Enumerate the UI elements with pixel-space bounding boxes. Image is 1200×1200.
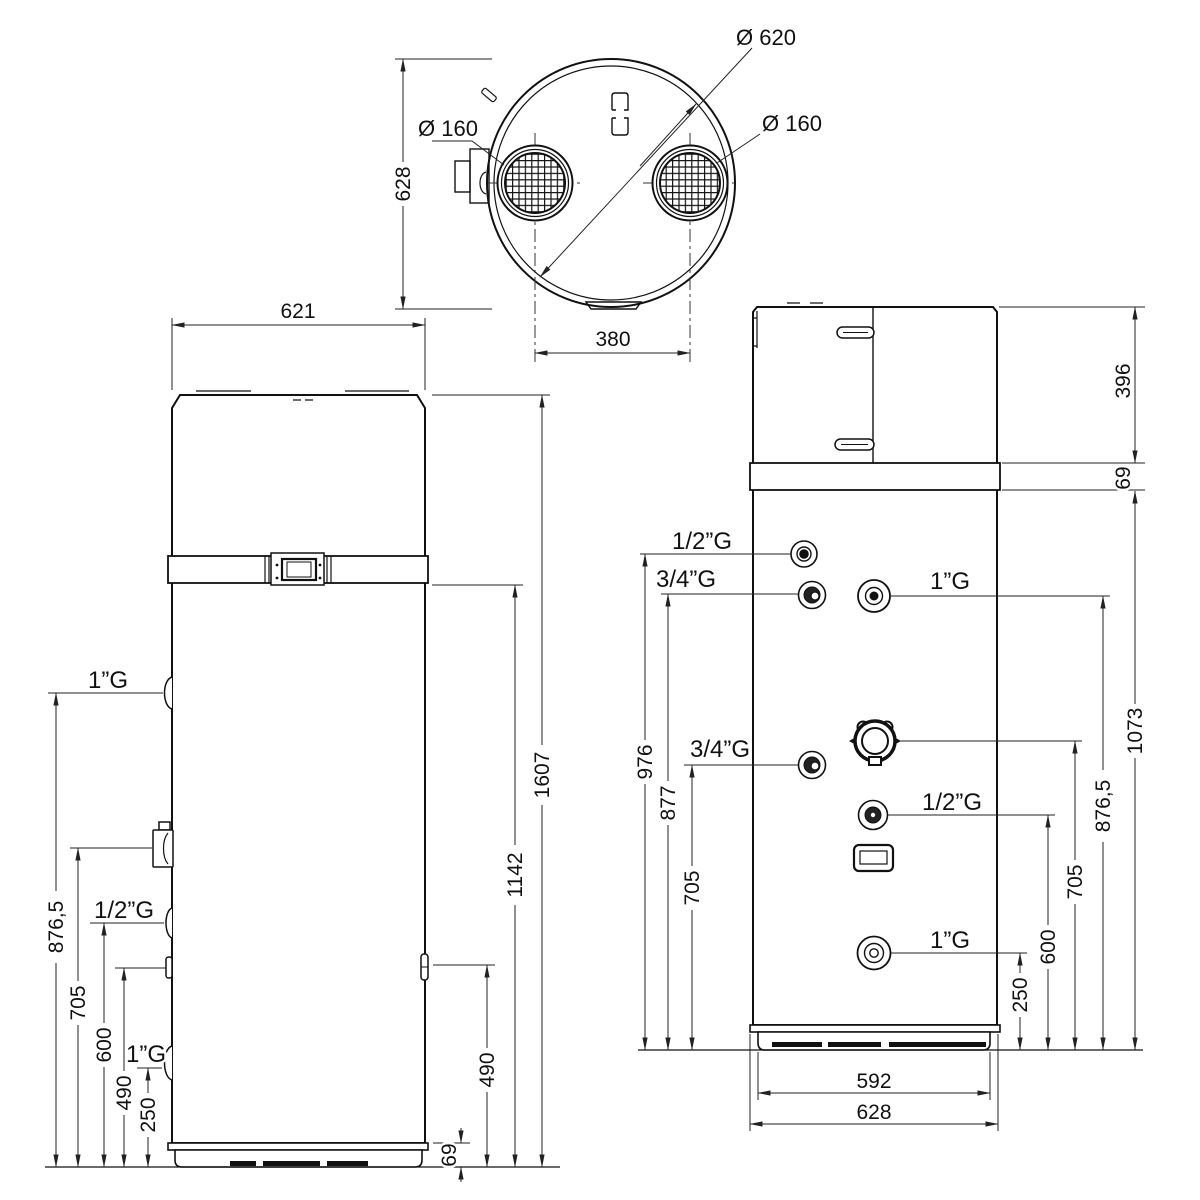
- back-label-half-mid: 1/2”G: [922, 789, 982, 816]
- front-port-half-label: 1/2”G: [94, 897, 154, 924]
- dim-1073-label: 1073: [1124, 708, 1147, 755]
- cap-hinge-top: [837, 327, 874, 338]
- dim-1142-label: 1142: [504, 852, 527, 897]
- side-bracket: [455, 149, 489, 203]
- dim-976-label: 976: [634, 744, 657, 779]
- dim-490-right-label: 490: [476, 1052, 499, 1087]
- dim-705-back-left-label: 705: [681, 870, 704, 905]
- dim-69-front-label: 69: [438, 1143, 461, 1166]
- small-tab-fitting: [166, 957, 172, 978]
- back-label-1g-lower: 1”G: [930, 927, 970, 954]
- fan-grille-left: [498, 146, 573, 221]
- dim-877-label: 877: [657, 785, 680, 820]
- dia-620-label: Ø 620: [736, 25, 796, 50]
- dim-250-front: 250: [137, 1068, 162, 1167]
- back-band: [750, 463, 1000, 490]
- dim-705-front-label: 705: [67, 985, 90, 1020]
- back-label-half-top: 1/2”G: [672, 528, 732, 555]
- dim-1607-label: 1607: [531, 752, 554, 799]
- dim-69-band: 69: [1112, 466, 1135, 489]
- dia-160-left-label: Ø 160: [418, 116, 478, 141]
- dim-490-right: 490: [433, 965, 499, 1167]
- port-1g-upper: [858, 580, 890, 612]
- front-port-1g-low-label: 1”G: [126, 1041, 166, 1068]
- heat-pump-dimension-drawing: Ø 620 Ø 160 Ø 160 628 380: [0, 0, 1200, 1200]
- dim-976-back: 976: [634, 554, 657, 1050]
- dim-592-label: 592: [856, 1070, 891, 1093]
- dim-621-width: 621: [172, 300, 425, 390]
- dim-600-back-label: 600: [1037, 929, 1060, 964]
- dim-250-back-label: 250: [1009, 977, 1032, 1012]
- dim-705-back-left: 705: [681, 765, 704, 1050]
- dim-705-back-right-label: 705: [1064, 864, 1087, 899]
- back-body-outline: [753, 307, 997, 1025]
- dim-876-5-back-label: 876,5: [1092, 780, 1115, 833]
- front-view: 621 1607 1142 490 69: [45, 300, 560, 1182]
- side-box-fitting: [153, 822, 173, 867]
- port-half-g-front: [166, 908, 172, 938]
- right-latch-fitting: [421, 954, 428, 980]
- dim-380-duct-spacing: 380: [535, 328, 690, 353]
- dim-250-back: 250: [1009, 953, 1032, 1050]
- dim-396-label: 396: [1112, 363, 1135, 398]
- dim-628-label: 628: [392, 166, 415, 201]
- port-half-g-mid: [859, 801, 888, 830]
- dim-69-band-label: 69: [1112, 466, 1135, 489]
- technical-drawing-page: Ø 620 Ø 160 Ø 160 628 380: [0, 0, 1200, 1200]
- dim-380-label: 380: [595, 328, 630, 351]
- port-1g-top-front: [165, 677, 173, 709]
- dim-592-skirt: 592: [758, 1052, 990, 1100]
- port-half-g-top: [791, 541, 817, 567]
- dim-396-cap: 396: [999, 307, 1145, 490]
- front-base-vents: [230, 1161, 368, 1166]
- port-1g-lower: [858, 937, 891, 970]
- dia-160-right-label: Ø 160: [762, 111, 822, 136]
- front-body-outline: [172, 395, 425, 1143]
- back-base-lip: [750, 1025, 1000, 1032]
- dim-69-base-front: 69: [433, 1128, 470, 1182]
- back-label-threeq-mid: 3/4”G: [690, 736, 750, 763]
- dim-628-back-label: 628: [856, 1101, 891, 1124]
- dim-876-5-front-label: 876,5: [45, 901, 68, 954]
- dim-1607-total-height: 1607: [432, 395, 554, 1167]
- dim-628-top-view: 628: [392, 59, 492, 309]
- control-panel-display: [265, 553, 331, 585]
- dim-877-back: 877: [657, 594, 680, 1050]
- dim-621-label: 621: [280, 300, 315, 323]
- dim-600-front-label: 600: [93, 1027, 116, 1062]
- back-base-skirt: [758, 1032, 990, 1050]
- back-view: 1/2”G 3/4”G 1”G 3/4”G 1/2”G 1”G 976 877 …: [634, 303, 1147, 1131]
- dim-490-front-label: 490: [113, 1075, 136, 1110]
- fan-grille-right: [653, 146, 728, 221]
- front-port-1g-top-label: 1”G: [88, 667, 128, 694]
- port-threeq-g-top: [799, 582, 826, 609]
- cable-slot: [854, 845, 893, 871]
- dim-250-front-label: 250: [137, 1097, 160, 1132]
- back-label-1g-upper: 1”G: [930, 568, 970, 595]
- front-base-lip: [168, 1143, 428, 1150]
- rim-notch: [481, 88, 497, 103]
- dim-705-back-right: 705: [1064, 741, 1087, 1050]
- cap-hinge-bottom: [835, 439, 874, 450]
- port-threeq-g-mid: [799, 752, 826, 779]
- back-base-vents: [772, 1042, 986, 1047]
- dim-876-5-back: 876,5: [1092, 596, 1115, 1050]
- back-label-threeq-top: 3/4”G: [656, 566, 716, 593]
- dim-600-back: 600: [1037, 815, 1060, 1050]
- dim-1073-body: 1073: [1124, 491, 1147, 1050]
